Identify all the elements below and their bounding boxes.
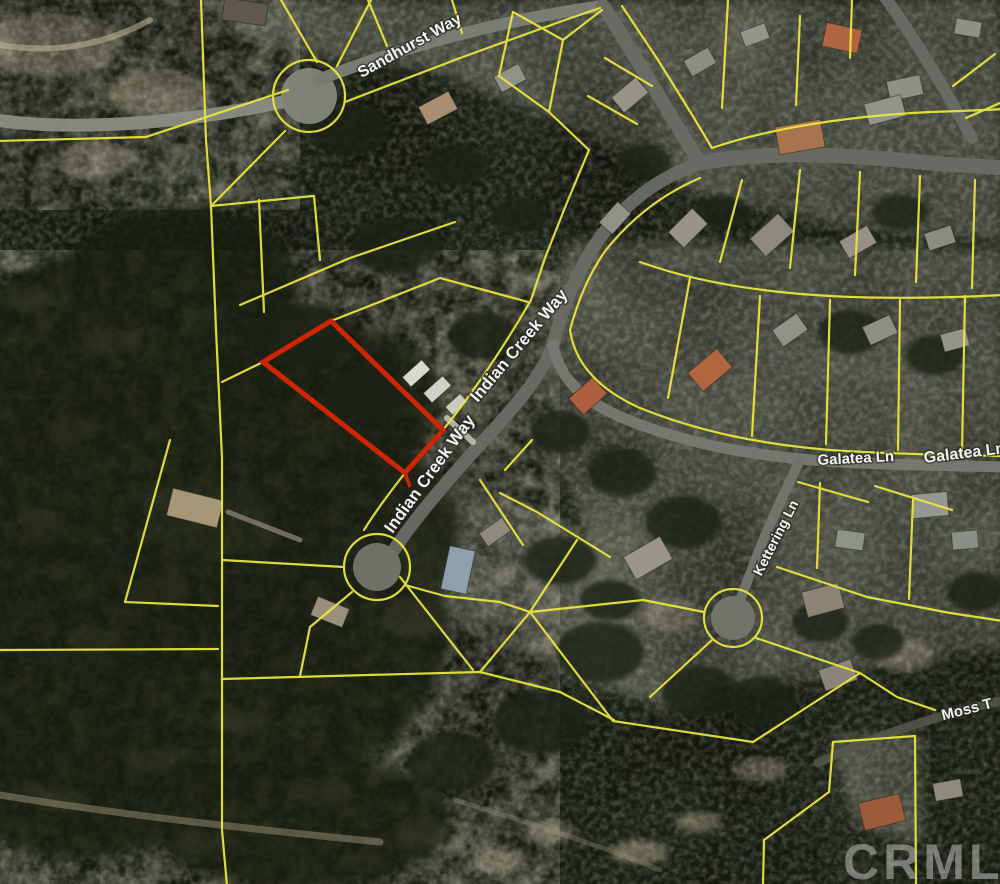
map-viewport: Sandhurst Way Indian Creek Way Indian Cr… [0,0,1000,884]
road-kettering-culdesac [711,596,755,640]
satellite-map: Sandhurst Way Indian Creek Way Indian Cr… [0,0,1000,884]
road-indian-culdesac [353,543,401,591]
crmls-watermark: CRMLS [843,834,1000,884]
